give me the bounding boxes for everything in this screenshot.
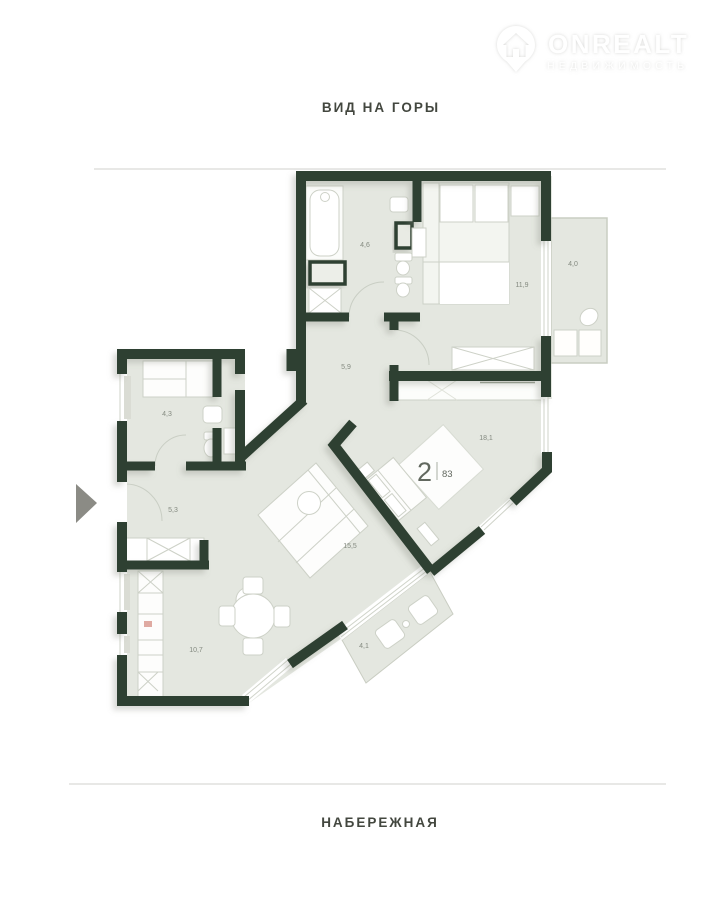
svg-text:ВИД НА ГОРЫ: ВИД НА ГОРЫ <box>322 100 440 115</box>
svg-text:4,3: 4,3 <box>162 411 172 418</box>
svg-text:4,0: 4,0 <box>568 261 578 268</box>
svg-text:ONREALT: ONREALT <box>548 29 689 59</box>
svg-text:11,9: 11,9 <box>515 282 528 289</box>
svg-text:НЕДВИЖИМОСТЬ: НЕДВИЖИМОСТЬ <box>547 60 688 72</box>
svg-text:5,9: 5,9 <box>341 364 351 371</box>
svg-text:83: 83 <box>442 469 453 480</box>
svg-text:10,7: 10,7 <box>189 647 203 654</box>
svg-text:15,5: 15,5 <box>343 543 357 550</box>
svg-text:4,1: 4,1 <box>359 643 369 650</box>
svg-text:5,3: 5,3 <box>168 507 178 514</box>
svg-text:4,6: 4,6 <box>360 242 370 249</box>
svg-text:НАБЕРЕЖНАЯ: НАБЕРЕЖНАЯ <box>321 815 439 830</box>
svg-text:18,1: 18,1 <box>479 435 493 442</box>
svg-text:2: 2 <box>417 457 432 487</box>
